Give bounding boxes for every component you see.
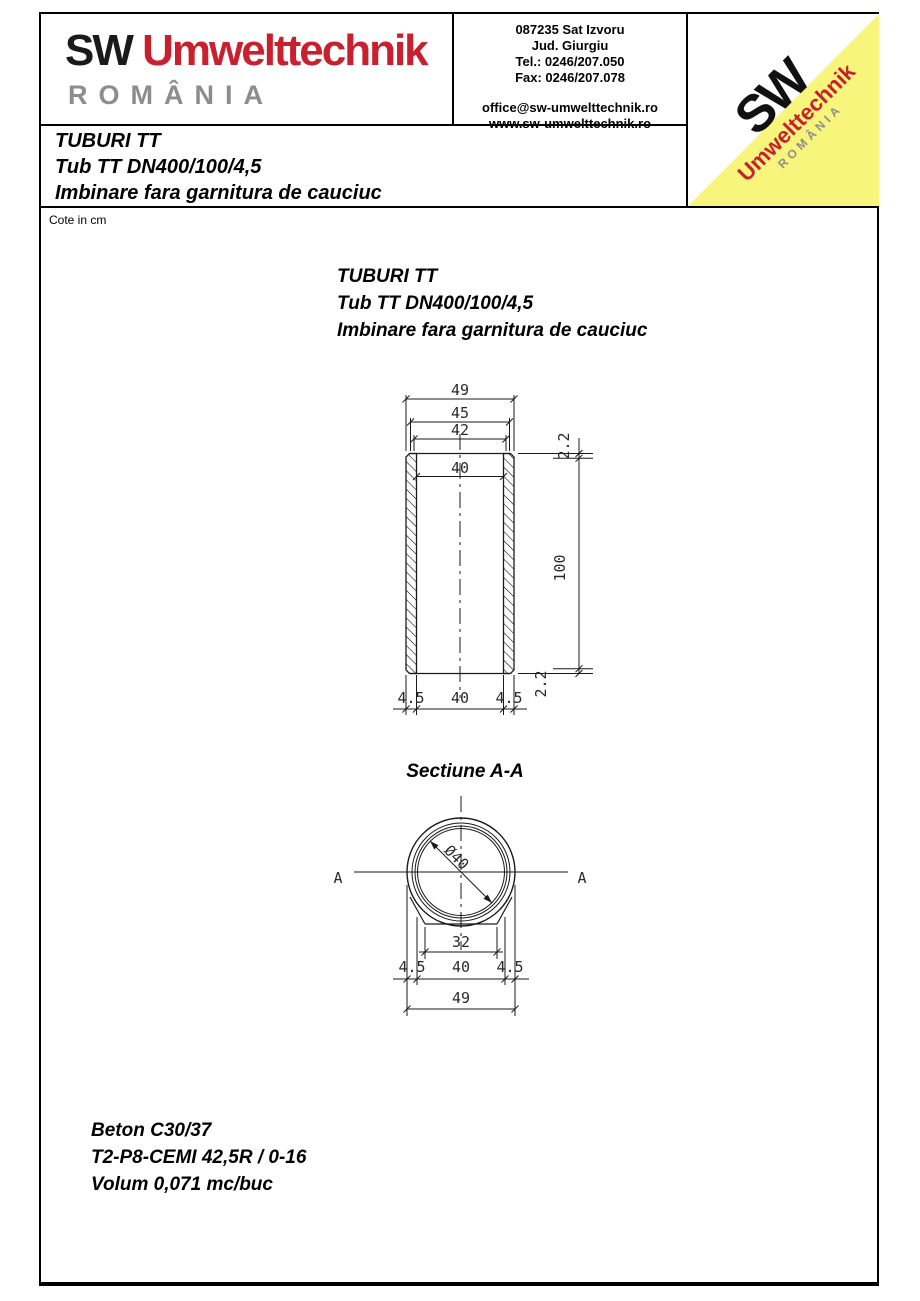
dim-elev-height-100: 100: [551, 554, 569, 581]
section-marker-left: A: [333, 869, 342, 887]
dim-sect-wall-right: 4.5: [496, 958, 523, 976]
dim-sect-wall-left: 4.5: [398, 958, 425, 976]
dim-sect-diameter: Ø40: [441, 842, 473, 874]
dim-sect-base-32: 32: [452, 933, 470, 951]
section-marker-right: A: [577, 869, 586, 887]
technical-drawing: 49 45 42 40 2.2 100 2.2 4.5 40 4.5: [41, 14, 877, 1282]
dim-elev-inner-40: 40: [451, 689, 469, 707]
dim-elev-bore-40: 40: [451, 459, 469, 477]
dim-elev-wall-right: 4.5: [495, 689, 522, 707]
dim-elev-step-bottom: 2.2: [532, 670, 550, 697]
elevation-view: 49 45 42 40 2.2 100 2.2 4.5 40 4.5: [393, 381, 593, 715]
dim-elev-49: 49: [451, 381, 469, 399]
datasheet-page: SW Umwelttechnik ROMÂNIA 087235 Sat Izvo…: [0, 0, 920, 1301]
page-frame: SW Umwelttechnik ROMÂNIA 087235 Sat Izvo…: [39, 12, 879, 1286]
dim-elev-45: 45: [451, 404, 469, 422]
section-view: A A Ø40 32 4.5 40 4.5 49: [333, 796, 586, 1016]
dim-elev-42: 42: [451, 421, 469, 439]
dim-elev-wall-left: 4.5: [397, 689, 424, 707]
dim-sect-outer-49: 49: [452, 989, 470, 1007]
dim-sect-inner-40: 40: [452, 958, 470, 976]
dim-elev-step-top: 2.2: [555, 432, 573, 459]
